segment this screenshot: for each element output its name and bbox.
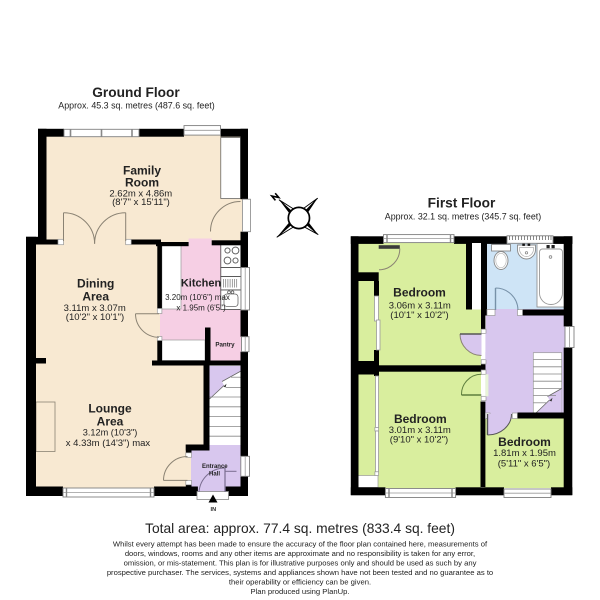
svg-text:Bedroom: Bedroom xyxy=(393,286,446,300)
svg-text:Approx. 45.3 sq. metres (487.6: Approx. 45.3 sq. metres (487.6 sq. feet) xyxy=(58,101,214,111)
svg-text:Area: Area xyxy=(82,289,109,303)
svg-text:(9'10" x 10'2"): (9'10" x 10'2") xyxy=(390,435,448,446)
svg-text:Plan produced using PlanUp.: Plan produced using PlanUp. xyxy=(251,587,350,596)
svg-text:3.20m (10'6") max: 3.20m (10'6") max xyxy=(165,293,230,302)
svg-text:their operability or efficienc: their operability or efficiency can be g… xyxy=(229,578,371,587)
svg-text:(5'11" x 6'5"): (5'11" x 6'5") xyxy=(498,458,550,469)
svg-text:Approx. 32.1 sq. metres (345.7: Approx. 32.1 sq. metres (345.7 sq. feet) xyxy=(385,212,541,222)
svg-text:Whilst every attempt has been: Whilst every attempt has been made to en… xyxy=(113,540,488,549)
svg-text:Pantry: Pantry xyxy=(215,342,235,349)
svg-text:x 1.95m (6'5"): x 1.95m (6'5") xyxy=(176,304,226,313)
svg-text:Entrance: Entrance xyxy=(202,464,228,470)
svg-text:prospective purchaser. The ser: prospective purchaser. The services, sys… xyxy=(107,568,493,577)
svg-text:(8'7" x 15'11"): (8'7" x 15'11") xyxy=(112,197,170,208)
svg-text:First Floor: First Floor xyxy=(428,196,496,211)
svg-text:3.12m (10'3"): 3.12m (10'3") xyxy=(83,428,138,438)
svg-text:Bedroom: Bedroom xyxy=(498,435,551,449)
svg-text:IN: IN xyxy=(211,507,217,513)
svg-text:1.81m x 1.95m: 1.81m x 1.95m xyxy=(493,448,556,459)
svg-text:(10'2" x 10'1"): (10'2" x 10'1") xyxy=(66,312,124,323)
svg-text:Room: Room xyxy=(125,175,159,189)
svg-text:Hall: Hall xyxy=(209,472,220,478)
svg-text:Area: Area xyxy=(97,414,124,428)
svg-text:doors, windows, rooms and any: doors, windows, rooms and any other item… xyxy=(125,549,475,558)
svg-text:Kitchen: Kitchen xyxy=(181,278,222,290)
svg-text:omission, or mis-statement. Th: omission, or mis-statement. This plan is… xyxy=(124,559,477,568)
svg-text:Ground Floor: Ground Floor xyxy=(92,85,180,100)
svg-text:Total area: approx. 77.4 sq. m: Total area: approx. 77.4 sq. metres (833… xyxy=(145,521,455,536)
svg-text:x 4.33m (14'3") max: x 4.33m (14'3") max xyxy=(66,438,151,449)
svg-text:(10'1" x 10'2"): (10'1" x 10'2") xyxy=(390,310,448,321)
